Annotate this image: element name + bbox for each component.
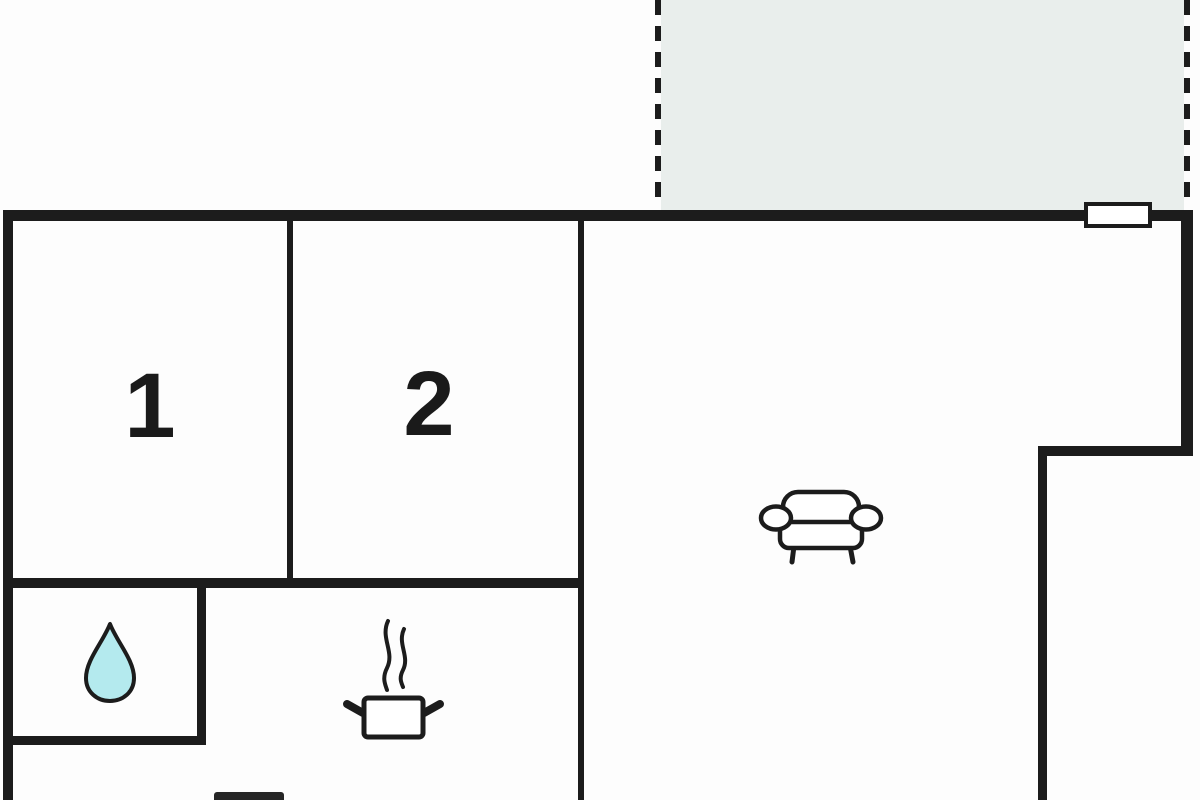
sofa-seat xyxy=(780,522,862,548)
pot-body xyxy=(364,698,423,737)
sofa-armrest-left xyxy=(761,507,791,530)
sofa-icon xyxy=(761,492,881,562)
terrace-floor xyxy=(661,0,1184,210)
sofa-armrest-right xyxy=(851,507,881,530)
terrace-area xyxy=(658,0,1187,210)
wall-notch-horizontal xyxy=(1038,446,1193,456)
floor-plan: 1 2 xyxy=(0,0,1200,800)
room-1-label: 1 xyxy=(124,355,175,457)
outer-wall-right-lower xyxy=(1038,446,1047,800)
wall-livingroom-divider xyxy=(578,221,584,800)
outer-wall-left xyxy=(3,210,13,800)
cooking-pot-icon xyxy=(347,621,440,737)
window-icon xyxy=(1086,204,1150,226)
pot-handle-right xyxy=(424,704,440,713)
steam-icon-left xyxy=(384,621,389,690)
outer-wall-top xyxy=(3,210,1193,221)
wall-room1-room2 xyxy=(287,221,293,583)
wall-bathroom-bottom xyxy=(3,736,206,745)
appliance-icon xyxy=(214,792,284,800)
water-drop-icon xyxy=(86,624,134,701)
outer-wall-right-upper xyxy=(1181,210,1193,456)
floor-plan-drawing: 1 2 xyxy=(0,0,1200,800)
pot-handle-left xyxy=(347,704,363,713)
wall-bedrooms-kitchen xyxy=(3,578,584,588)
steam-icon-right xyxy=(401,629,405,687)
room-2-label: 2 xyxy=(403,353,454,455)
wall-bathroom-right xyxy=(197,588,206,745)
